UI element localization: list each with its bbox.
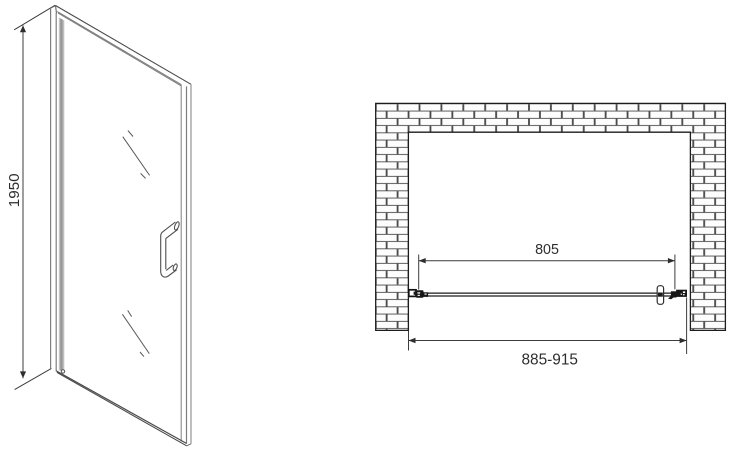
svg-text:1950: 1950	[6, 173, 23, 207]
svg-text:885-915: 885-915	[521, 352, 577, 369]
svg-text:805: 805	[535, 242, 559, 258]
